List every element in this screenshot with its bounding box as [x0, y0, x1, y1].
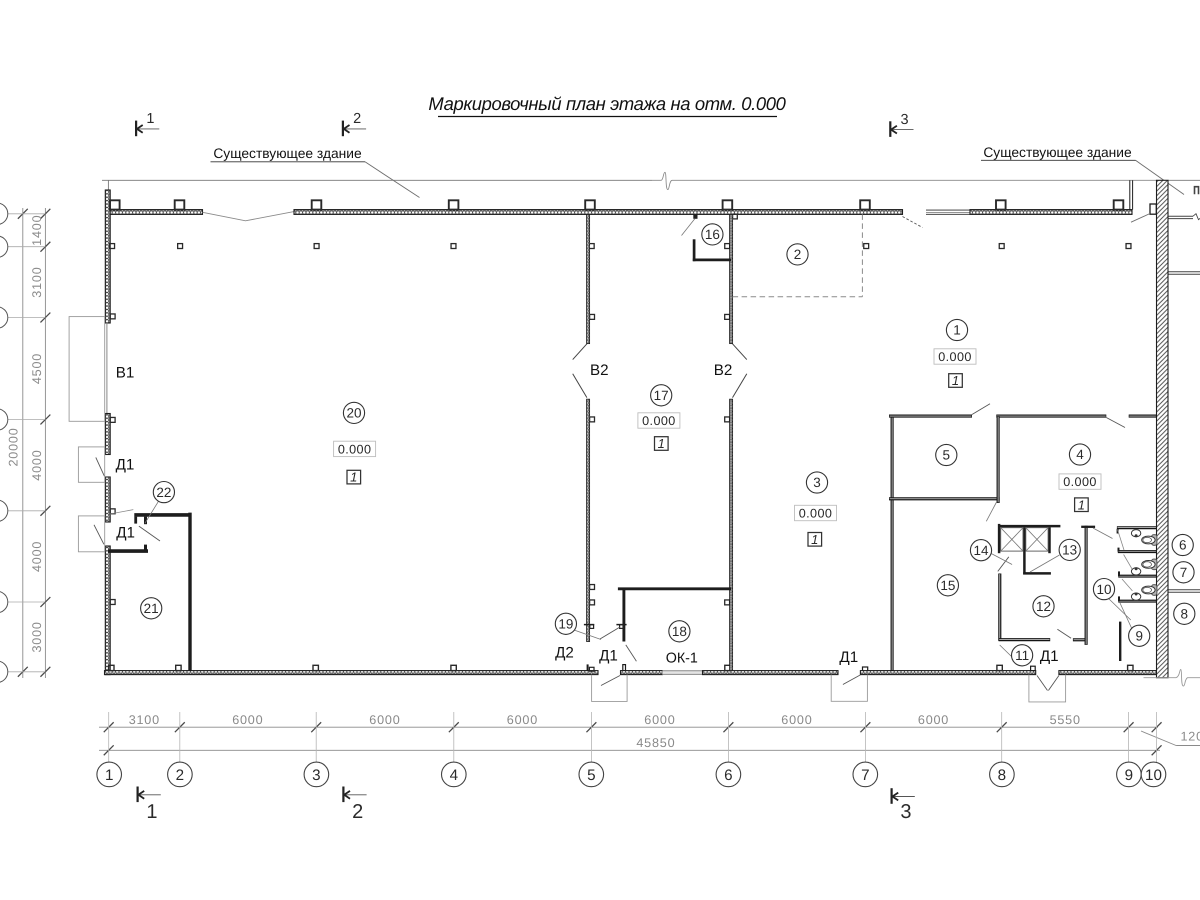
- svg-text:5: 5: [587, 767, 595, 784]
- svg-text:4000: 4000: [30, 541, 44, 572]
- svg-text:20000: 20000: [7, 427, 21, 466]
- svg-text:0.000: 0.000: [338, 442, 372, 456]
- svg-text:4500: 4500: [30, 353, 44, 384]
- svg-text:Д1: Д1: [1040, 648, 1059, 665]
- svg-text:7: 7: [1180, 565, 1188, 580]
- svg-text:16: 16: [705, 227, 720, 242]
- svg-text:Существующее здание: Существующее здание: [983, 145, 1132, 160]
- svg-text:14: 14: [973, 543, 989, 558]
- svg-text:21: 21: [144, 601, 159, 616]
- svg-text:1: 1: [146, 801, 157, 823]
- svg-text:3100: 3100: [129, 713, 160, 727]
- svg-text:0.000: 0.000: [938, 350, 972, 364]
- svg-text:5550: 5550: [1050, 713, 1081, 727]
- svg-text:7: 7: [861, 767, 869, 784]
- svg-text:18: 18: [672, 624, 687, 639]
- svg-text:6: 6: [1179, 538, 1187, 553]
- svg-text:1200: 1200: [1181, 730, 1200, 744]
- svg-text:2: 2: [176, 767, 184, 784]
- svg-text:1400: 1400: [30, 215, 44, 246]
- svg-text:В1: В1: [116, 365, 135, 382]
- svg-text:15: 15: [940, 578, 955, 593]
- svg-text:Д1: Д1: [599, 648, 618, 665]
- svg-text:В2: В2: [714, 362, 733, 379]
- svg-text:Д1: Д1: [839, 649, 858, 666]
- svg-text:13: 13: [1062, 543, 1077, 558]
- svg-text:4000: 4000: [30, 449, 44, 480]
- svg-text:Существующее здание: Существующее здание: [213, 146, 362, 161]
- svg-text:В2: В2: [590, 362, 609, 379]
- svg-text:22: 22: [156, 485, 171, 500]
- svg-text:2: 2: [794, 247, 802, 262]
- svg-text:1: 1: [350, 470, 357, 485]
- svg-text:9: 9: [1125, 767, 1133, 784]
- svg-text:1: 1: [811, 532, 818, 547]
- svg-text:Маркировочный план этажа на от: Маркировочный план этажа на отм. 0.000: [428, 93, 786, 114]
- svg-text:10: 10: [1096, 582, 1111, 597]
- svg-text:6000: 6000: [369, 713, 400, 727]
- svg-text:3: 3: [312, 767, 320, 784]
- svg-text:6000: 6000: [918, 713, 949, 727]
- svg-text:Д1: Д1: [116, 524, 135, 541]
- svg-text:3: 3: [901, 112, 909, 128]
- svg-text:Д2: Д2: [555, 644, 574, 661]
- svg-text:45850: 45850: [636, 736, 675, 750]
- svg-text:6000: 6000: [507, 713, 538, 727]
- svg-text:8: 8: [1181, 607, 1189, 622]
- svg-text:17: 17: [654, 388, 669, 403]
- svg-text:4: 4: [1076, 447, 1084, 462]
- svg-text:2: 2: [353, 111, 361, 127]
- svg-text:19: 19: [558, 617, 573, 632]
- svg-text:ОК-1: ОК-1: [666, 650, 698, 666]
- svg-text:0.000: 0.000: [799, 506, 833, 520]
- svg-text:11: 11: [1015, 648, 1029, 663]
- svg-text:6: 6: [724, 767, 732, 784]
- svg-text:8: 8: [998, 767, 1006, 784]
- svg-text:Д1: Д1: [116, 457, 135, 474]
- svg-text:1: 1: [105, 767, 113, 784]
- svg-text:0.000: 0.000: [1063, 475, 1097, 489]
- svg-text:2: 2: [352, 801, 363, 823]
- svg-text:1: 1: [146, 111, 154, 127]
- svg-text:1: 1: [658, 436, 665, 451]
- svg-text:9: 9: [1135, 629, 1143, 644]
- svg-text:4: 4: [450, 767, 458, 784]
- svg-text:20: 20: [346, 406, 361, 421]
- svg-text:5: 5: [943, 448, 951, 463]
- svg-text:6000: 6000: [232, 713, 263, 727]
- svg-text:12: 12: [1036, 599, 1051, 614]
- svg-text:1: 1: [952, 373, 959, 388]
- svg-text:6000: 6000: [781, 713, 812, 727]
- svg-text:1: 1: [953, 323, 961, 338]
- svg-text:3000: 3000: [30, 621, 44, 652]
- svg-text:0.000: 0.000: [642, 414, 676, 428]
- svg-text:1: 1: [1078, 497, 1085, 512]
- svg-text:3: 3: [900, 801, 911, 823]
- svg-text:6000: 6000: [644, 713, 675, 727]
- svg-text:3: 3: [813, 475, 821, 490]
- svg-text:3100: 3100: [30, 266, 44, 297]
- svg-text:10: 10: [1145, 767, 1162, 784]
